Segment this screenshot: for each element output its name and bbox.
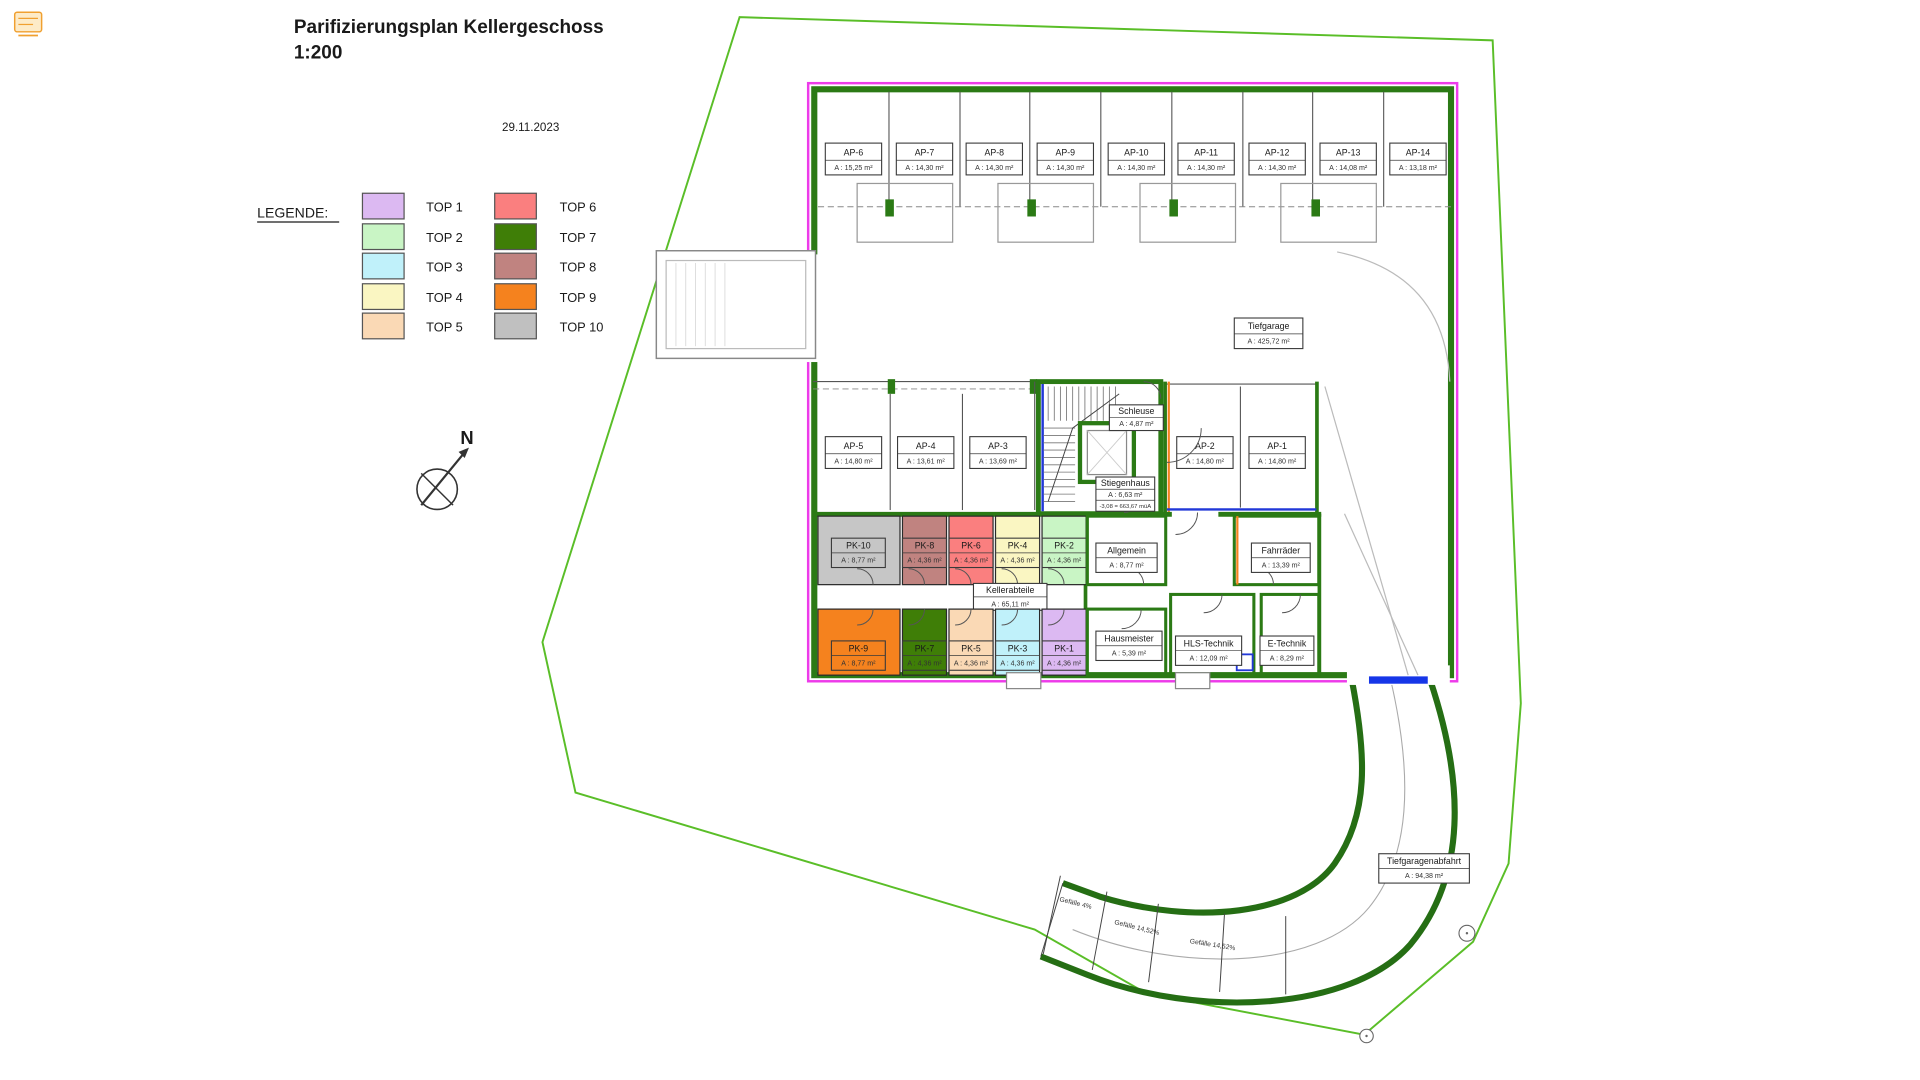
legend-swatch bbox=[495, 253, 537, 279]
legend-swatch bbox=[362, 253, 404, 279]
parking-label-ap3: AP-3A : 13,69 m² bbox=[970, 437, 1026, 469]
room-label-fahrraeder: FahrräderA : 13,39 m² bbox=[1251, 543, 1310, 572]
space-id: PK-1 bbox=[1054, 643, 1074, 653]
legend-swatch bbox=[362, 224, 404, 250]
room-level: -3,08 = 663,67 müA bbox=[1099, 504, 1151, 510]
legend-swatch bbox=[495, 224, 537, 250]
legend-swatch bbox=[362, 313, 404, 339]
legend-item-top1: TOP 1 bbox=[362, 193, 462, 219]
legend-swatch bbox=[495, 193, 537, 219]
space-id: PK-2 bbox=[1054, 541, 1074, 551]
space-area: A : 15,25 m² bbox=[834, 164, 873, 172]
room-name: Fahrräder bbox=[1261, 545, 1300, 555]
cellar-upper-row: PK-10A : 8,77 m² PK-8A : 4,36 m² PK-6A :… bbox=[818, 516, 1086, 584]
room-area: A : 6,63 m² bbox=[1108, 491, 1143, 499]
parking-label-ap11: AP-11A : 14,30 m² bbox=[1178, 143, 1234, 175]
legend-label: TOP 1 bbox=[426, 200, 463, 215]
survey-marker-dot bbox=[1466, 932, 1468, 934]
room-label-etechnik: E-TechnikA : 8,29 m² bbox=[1260, 636, 1314, 665]
room-name: Tiefgaragenabfahrt bbox=[1387, 856, 1462, 866]
north-arrow: N bbox=[417, 427, 474, 509]
legend-label: TOP 7 bbox=[560, 230, 597, 245]
legend-swatch bbox=[362, 193, 404, 219]
slope-label: Gefälle 14,52% bbox=[1189, 938, 1236, 952]
room-name: Tiefgarage bbox=[1248, 321, 1290, 331]
space-id: AP-6 bbox=[844, 147, 864, 157]
space-area: A : 14,30 m² bbox=[975, 164, 1014, 172]
legend-item-top4: TOP 4 bbox=[362, 284, 462, 310]
space-area: A : 8,77 m² bbox=[841, 659, 876, 667]
legend-item-top10: TOP 10 bbox=[495, 313, 604, 339]
plan-date: 29.11.2023 bbox=[502, 121, 559, 134]
title-block: Parifizierungsplan Kellergeschoss 1:200 … bbox=[294, 17, 604, 134]
room-label-hausmeister: HausmeisterA : 5,39 m² bbox=[1096, 631, 1162, 660]
legend: LEGENDE: TOP 1 TOP 2 TOP 3 TOP 4 TOP 5 T… bbox=[257, 193, 603, 339]
legend-label: TOP 9 bbox=[560, 290, 597, 305]
parking-label-ap9: AP-9A : 14,30 m² bbox=[1037, 143, 1093, 175]
parking-label-ap2: AP-2A : 14,80 m² bbox=[1177, 437, 1233, 469]
legend-label: TOP 10 bbox=[560, 319, 604, 334]
room-area: A : 8,77 m² bbox=[1109, 562, 1144, 570]
space-id: AP-12 bbox=[1265, 147, 1290, 157]
space-id: AP-4 bbox=[916, 441, 936, 451]
ramp-inner-wall bbox=[1063, 680, 1362, 913]
room-label-stiegenhaus: StiegenhausA : 6,63 m²-3,08 = 663,67 müA bbox=[1096, 477, 1155, 511]
space-area: A : 4,36 m² bbox=[907, 557, 942, 565]
room-name: Kellerabteile bbox=[986, 585, 1035, 595]
space-id: AP-9 bbox=[1056, 147, 1076, 157]
space-area: A : 13,69 m² bbox=[979, 458, 1018, 466]
legend-title: LEGENDE: bbox=[257, 205, 328, 221]
space-id: AP-8 bbox=[984, 147, 1004, 157]
ramp-outer-wall bbox=[1041, 680, 1455, 1002]
space-id: AP-14 bbox=[1406, 147, 1431, 157]
space-area: A : 14,08 m² bbox=[1329, 164, 1368, 172]
space-area: A : 13,18 m² bbox=[1399, 164, 1438, 172]
parking-label-ap1: AP-1A : 14,80 m² bbox=[1249, 437, 1305, 469]
space-area: A : 14,30 m² bbox=[905, 164, 944, 172]
space-area: A : 14,30 m² bbox=[1258, 164, 1297, 172]
space-area: A : 14,30 m² bbox=[1046, 164, 1085, 172]
parking-label-ap7: AP-7A : 14,30 m² bbox=[896, 143, 952, 175]
legend-swatch bbox=[495, 313, 537, 339]
space-id: AP-7 bbox=[915, 147, 935, 157]
space-area: A : 14,80 m² bbox=[1186, 458, 1225, 466]
space-id: PK-9 bbox=[849, 643, 869, 653]
legend-item-top3: TOP 3 bbox=[362, 253, 462, 279]
room-label-kellerabteile: KellerabteileA : 65,11 m² bbox=[973, 583, 1046, 610]
slope-label: Gefälle 14,52% bbox=[1114, 919, 1160, 937]
survey-marker-dot bbox=[1365, 1035, 1367, 1037]
room-name: HLS-Technik bbox=[1184, 638, 1234, 648]
parking-label-ap13: AP-13A : 14,08 m² bbox=[1320, 143, 1376, 175]
space-area: A : 4,36 m² bbox=[907, 659, 942, 667]
parking-label-ap6: AP-6A : 15,25 m² bbox=[825, 143, 881, 175]
room-area: A : 8,29 m² bbox=[1270, 654, 1305, 662]
space-id: AP-10 bbox=[1124, 147, 1149, 157]
page-scale: 1:200 bbox=[294, 43, 343, 64]
space-id: PK-6 bbox=[961, 541, 981, 551]
cellar-corridor: KellerabteileA : 65,11 m² bbox=[973, 583, 1046, 610]
north-label: N bbox=[460, 427, 473, 448]
parking-label-ap5: AP-5A : 14,80 m² bbox=[825, 437, 881, 469]
space-id: AP-5 bbox=[844, 441, 864, 451]
space-area: A : 14,30 m² bbox=[1117, 164, 1156, 172]
legend-label: TOP 4 bbox=[426, 290, 463, 305]
legend-item-top6: TOP 6 bbox=[495, 193, 597, 219]
legend-swatch bbox=[362, 284, 404, 310]
space-area: A : 14,30 m² bbox=[1187, 164, 1226, 172]
legend-item-top5: TOP 5 bbox=[362, 313, 462, 339]
slope-label: Gefälle 4% bbox=[1059, 896, 1093, 911]
space-area: A : 8,77 m² bbox=[841, 557, 876, 565]
space-id: AP-1 bbox=[1267, 441, 1287, 451]
space-id: PK-3 bbox=[1008, 643, 1028, 653]
entry-stair-annex bbox=[656, 251, 815, 359]
space-area: A : 4,36 m² bbox=[1000, 659, 1035, 667]
space-area: A : 13,61 m² bbox=[907, 458, 946, 466]
space-id: PK-10 bbox=[846, 541, 871, 551]
page-title: Parifizierungsplan Kellergeschoss bbox=[294, 17, 604, 38]
parking-label-ap10: AP-10A : 14,30 m² bbox=[1108, 143, 1164, 175]
legend-label: TOP 3 bbox=[426, 260, 463, 275]
legend-item-top9: TOP 9 bbox=[495, 284, 597, 310]
space-area: A : 4,36 m² bbox=[954, 557, 989, 565]
legend-label: TOP 6 bbox=[560, 200, 597, 215]
space-area: A : 14,80 m² bbox=[834, 458, 873, 466]
room-name: Schleuse bbox=[1118, 406, 1154, 416]
parking-label-ap4: AP-4A : 13,61 m² bbox=[898, 437, 954, 469]
room-label-hls: HLS-TechnikA : 12,09 m² bbox=[1176, 636, 1242, 665]
space-area: A : 4,36 m² bbox=[954, 659, 989, 667]
parking-label-ap12: AP-12A : 14,30 m² bbox=[1249, 143, 1305, 175]
parking-label-ap8: AP-8A : 14,30 m² bbox=[966, 143, 1022, 175]
room-name: Allgemein bbox=[1107, 545, 1146, 555]
room-label-schleuse: SchleuseA : 4,87 m² bbox=[1109, 405, 1163, 431]
space-id: AP-3 bbox=[988, 441, 1008, 451]
room-area: A : 4,87 m² bbox=[1119, 420, 1154, 428]
room-area: A : 94,38 m² bbox=[1405, 872, 1444, 880]
space-id: AP-11 bbox=[1194, 147, 1218, 157]
legend-item-top8: TOP 8 bbox=[495, 253, 597, 279]
room-name: Stiegenhaus bbox=[1101, 478, 1151, 488]
room-area: A : 425,72 m² bbox=[1248, 338, 1291, 346]
room-area: A : 12,09 m² bbox=[1189, 654, 1228, 662]
column bbox=[888, 379, 895, 394]
room-area: A : 13,39 m² bbox=[1262, 562, 1301, 570]
space-id: AP-13 bbox=[1336, 147, 1361, 157]
space-id: PK-5 bbox=[961, 643, 981, 653]
legend-label: TOP 5 bbox=[426, 319, 463, 334]
logo-icon bbox=[15, 12, 42, 32]
space-id: PK-8 bbox=[915, 541, 935, 551]
legend-item-top2: TOP 2 bbox=[362, 224, 462, 250]
garage-door-marker bbox=[1369, 676, 1428, 683]
room-label-tiefgarage: TiefgarageA : 425,72 m² bbox=[1234, 318, 1303, 349]
parking-label-ap14: AP-14A : 13,18 m² bbox=[1390, 143, 1446, 175]
space-area: A : 4,36 m² bbox=[1047, 659, 1082, 667]
legend-label: TOP 8 bbox=[560, 260, 597, 275]
space-id: PK-4 bbox=[1008, 541, 1028, 551]
garage-ramp: Gefälle 4% Gefälle 14,52% Gefälle 14,52% bbox=[1041, 680, 1455, 1002]
cellar-lower-row: PK-9A : 8,77 m² PK-7A : 4,36 m² PK-5A : … bbox=[818, 609, 1086, 675]
room-area: A : 65,11 m² bbox=[991, 601, 1029, 609]
legend-label: TOP 2 bbox=[426, 230, 463, 245]
space-area: A : 4,36 m² bbox=[1047, 557, 1082, 565]
space-id: PK-7 bbox=[915, 643, 935, 653]
room-label-abfahrt: TiefgaragenabfahrtA : 94,38 m² bbox=[1379, 854, 1470, 883]
room-name: E-Technik bbox=[1268, 638, 1307, 648]
floorplan-canvas: Gefälle 4% Gefälle 14,52% Gefälle 14,52% bbox=[0, 0, 1920, 1080]
annex-outline bbox=[656, 251, 815, 359]
room-name: Hausmeister bbox=[1104, 634, 1153, 644]
room-area: A : 5,39 m² bbox=[1112, 650, 1147, 658]
ramp-slope-grid bbox=[1041, 876, 1286, 995]
space-area: A : 14,80 m² bbox=[1258, 458, 1297, 466]
space-area: A : 4,36 m² bbox=[1000, 557, 1035, 565]
room-label-allgemein: AllgemeinA : 8,77 m² bbox=[1096, 543, 1157, 572]
legend-item-top7: TOP 7 bbox=[495, 224, 597, 250]
legend-swatch bbox=[495, 284, 537, 310]
logo-mark bbox=[15, 12, 42, 35]
